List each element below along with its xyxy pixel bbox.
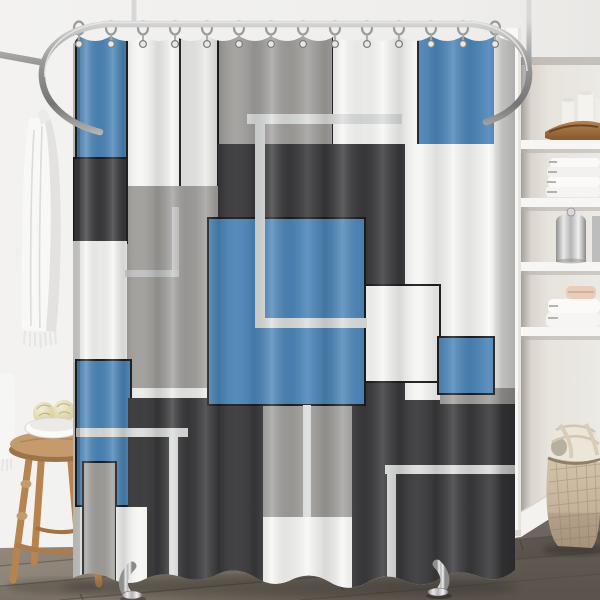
grommet bbox=[108, 41, 115, 48]
grommet bbox=[364, 41, 371, 48]
hanging-towel bbox=[22, 110, 61, 348]
curtain-fold-shading bbox=[73, 30, 515, 595]
grommet bbox=[172, 41, 179, 48]
bathroom-scene bbox=[0, 0, 600, 600]
shower-curtain bbox=[73, 30, 515, 595]
metal-canisters bbox=[556, 208, 600, 264]
grommet bbox=[460, 41, 467, 48]
folded-towels-upper bbox=[546, 158, 600, 197]
product-photo bbox=[0, 0, 600, 600]
alcove-side-shadow bbox=[521, 57, 531, 527]
grommet bbox=[76, 41, 83, 48]
grommet bbox=[204, 41, 211, 48]
grommet bbox=[396, 41, 403, 48]
alcove-top-shadow bbox=[521, 57, 600, 65]
grommet bbox=[236, 41, 243, 48]
curtain-left-edge-shadow bbox=[73, 30, 80, 595]
grommet bbox=[140, 41, 147, 48]
grommet bbox=[268, 41, 275, 48]
grommet bbox=[332, 41, 339, 48]
grommet bbox=[300, 41, 307, 48]
grommet bbox=[492, 41, 499, 48]
grommet bbox=[428, 41, 435, 48]
